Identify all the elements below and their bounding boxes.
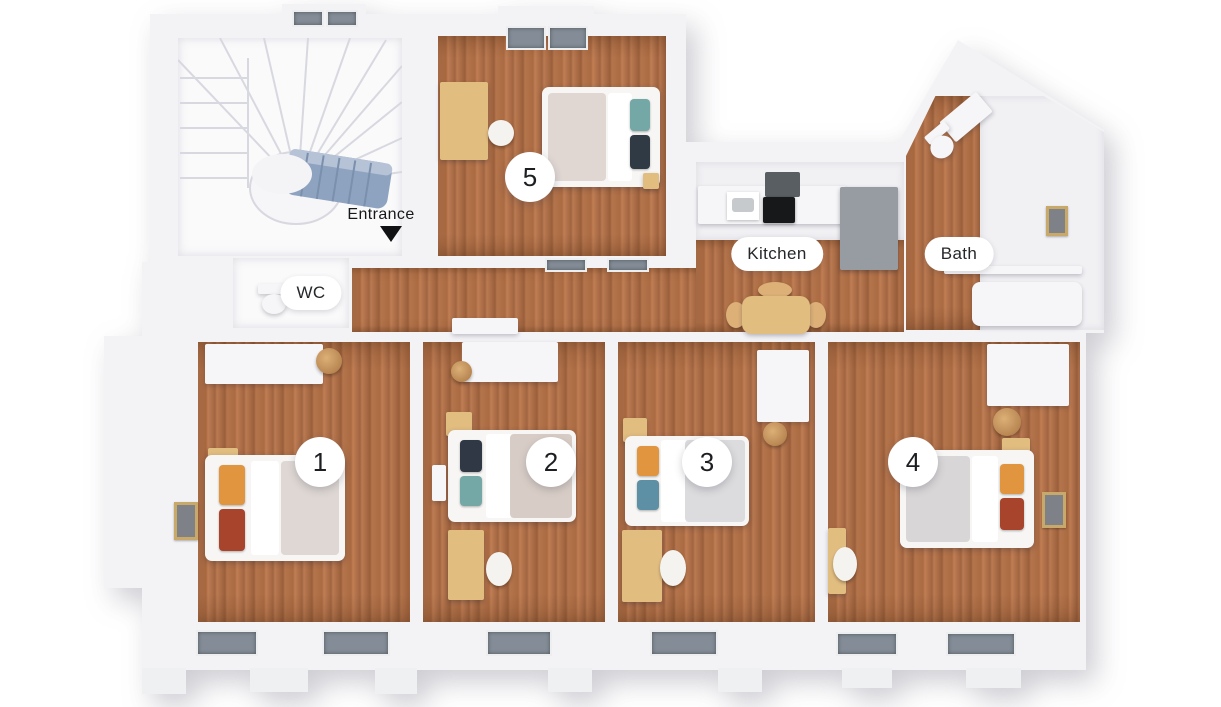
window [196, 630, 258, 656]
pillow [637, 446, 659, 476]
desk-chair [833, 547, 857, 581]
window [946, 632, 1016, 656]
pillow [637, 480, 659, 510]
window [486, 630, 552, 656]
bathroom-sink [939, 92, 992, 143]
room-badge-5: 5 [505, 152, 555, 202]
sink-basin [732, 198, 754, 212]
desk-chair [660, 550, 686, 586]
fridge-cabinets [840, 187, 898, 270]
bath-label: Bath [925, 237, 994, 271]
pillow [1000, 464, 1024, 494]
pillow [1000, 498, 1024, 530]
desk-chair [488, 120, 514, 146]
kitchen-sink [727, 192, 759, 220]
room-2 [423, 342, 605, 622]
room-badge-4: 4 [888, 437, 938, 487]
dresser [987, 344, 1069, 406]
hallway-vent [607, 258, 649, 272]
nightstand [643, 173, 659, 189]
desk-chair [486, 552, 512, 586]
desk [622, 530, 662, 602]
pillow [630, 99, 650, 131]
wall-art [174, 502, 198, 540]
range-hood [765, 172, 800, 197]
bath-room [906, 46, 1104, 330]
wardrobe [205, 344, 323, 384]
window [836, 632, 898, 656]
room-5 [438, 36, 666, 256]
room-4 [828, 342, 1080, 622]
bath-mirror [1046, 206, 1068, 236]
wc-label: WC [280, 276, 341, 310]
room-badge-1: 1 [295, 437, 345, 487]
entrance-arrow-icon [380, 226, 402, 242]
desk [440, 82, 488, 160]
wall-art [1042, 492, 1066, 528]
stair-window [326, 10, 358, 27]
basket [763, 422, 787, 446]
room-badge-2: 2 [526, 437, 576, 487]
wall-art [432, 465, 446, 501]
wardrobe [462, 342, 558, 382]
kitchen-label: Kitchen [731, 237, 823, 271]
pillow [630, 135, 650, 169]
basket [316, 348, 342, 374]
pillow [219, 509, 245, 551]
stove [763, 197, 795, 223]
basket [451, 361, 472, 382]
floor-plan-canvas: Entrance WC Kitchen Bath 1 2 3 4 5 [0, 0, 1221, 707]
hall-cabinet [452, 318, 518, 334]
room-badge-3: 3 [682, 437, 732, 487]
bathtub [972, 282, 1082, 326]
bed [542, 87, 660, 187]
pillow [460, 476, 482, 506]
desk [448, 530, 484, 600]
hallway-vent [545, 258, 587, 272]
pillow [219, 465, 245, 505]
pillow [460, 440, 482, 472]
dining-table [742, 296, 810, 334]
basket [993, 408, 1021, 436]
window [322, 630, 390, 656]
entrance-label: Entrance [347, 206, 414, 224]
stair-window [292, 10, 324, 27]
window [650, 630, 718, 656]
wardrobe [757, 350, 809, 422]
